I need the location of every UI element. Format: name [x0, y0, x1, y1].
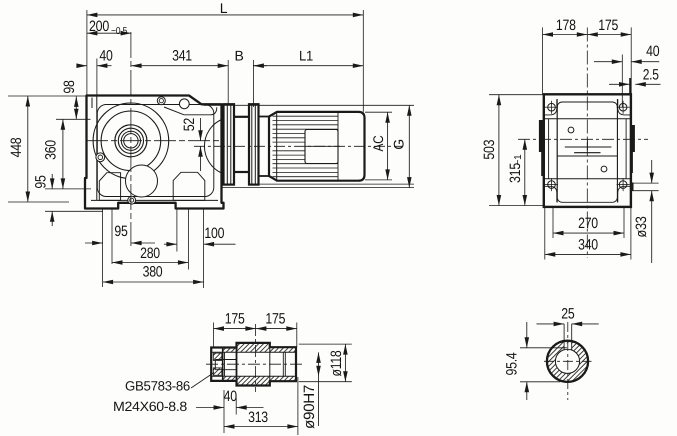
svg-text:175: 175	[265, 311, 285, 328]
svg-text:−1: −1	[513, 154, 524, 166]
svg-text:B: B	[234, 48, 243, 64]
svg-text:52: 52	[181, 118, 198, 131]
svg-text:95: 95	[114, 223, 127, 240]
svg-text:40: 40	[224, 388, 237, 405]
svg-text:98: 98	[61, 80, 78, 93]
svg-text:95: 95	[32, 175, 49, 188]
svg-text:175: 175	[598, 17, 618, 34]
svg-text:40: 40	[99, 48, 112, 65]
svg-text:95.4: 95.4	[503, 353, 520, 376]
svg-text:178: 178	[556, 17, 576, 34]
svg-text:341: 341	[172, 48, 192, 65]
svg-text:503: 503	[481, 140, 498, 160]
svg-text:270: 270	[578, 215, 598, 232]
svg-text:340: 340	[578, 237, 598, 254]
svg-text:313: 313	[248, 409, 268, 426]
svg-text:380: 380	[143, 264, 163, 281]
svg-text:280: 280	[140, 245, 160, 262]
svg-text:L1: L1	[299, 48, 313, 64]
svg-text:175: 175	[225, 311, 245, 328]
svg-text:M24X60-8.8: M24X60-8.8	[113, 399, 187, 414]
svg-text:25: 25	[561, 306, 574, 323]
svg-text:448: 448	[8, 138, 25, 158]
svg-text:2.5: 2.5	[643, 67, 659, 84]
svg-text:200: 200	[89, 18, 109, 35]
svg-text:ø90H7: ø90H7	[301, 385, 318, 429]
svg-text:GB5783-86: GB5783-86	[125, 379, 190, 394]
svg-text:−0.5: −0.5	[111, 26, 128, 37]
svg-text:360: 360	[42, 140, 59, 160]
svg-text:ø118: ø118	[328, 351, 345, 377]
svg-text:AC: AC	[370, 135, 386, 151]
svg-text:40: 40	[646, 43, 659, 60]
svg-text:L: L	[220, 0, 228, 16]
svg-text:100: 100	[204, 225, 224, 242]
svg-text:ø33: ø33	[633, 217, 650, 238]
svg-text:G: G	[390, 139, 406, 150]
